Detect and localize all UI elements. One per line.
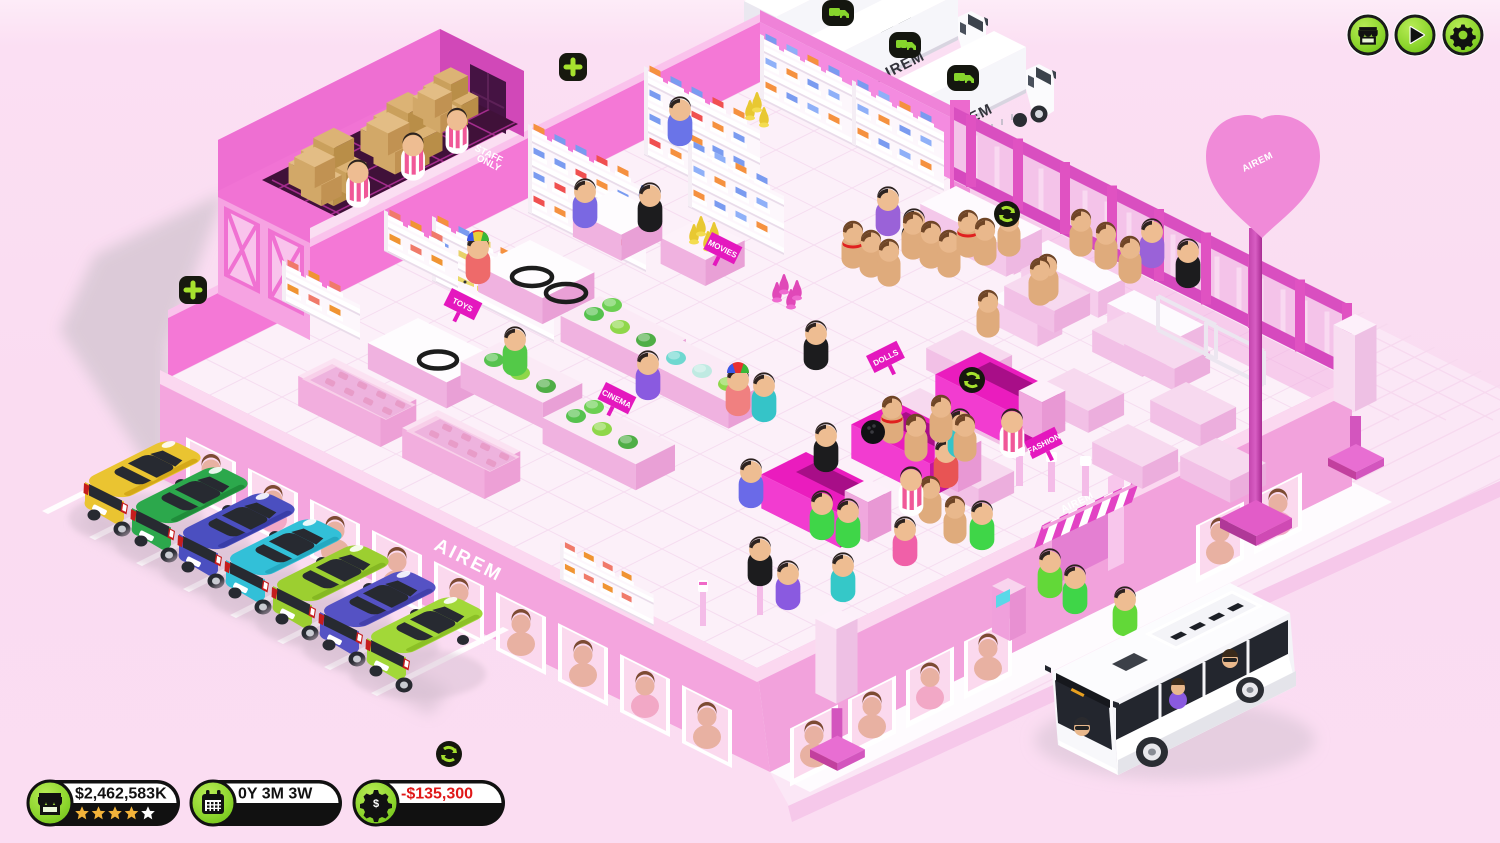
svg-text:$2,462,583K: $2,462,583K xyxy=(75,786,167,803)
svg-text:0Y 3M 3W: 0Y 3M 3W xyxy=(238,786,313,803)
svg-text:$: $ xyxy=(373,798,379,810)
svg-text:-$135,300: -$135,300 xyxy=(401,786,473,803)
